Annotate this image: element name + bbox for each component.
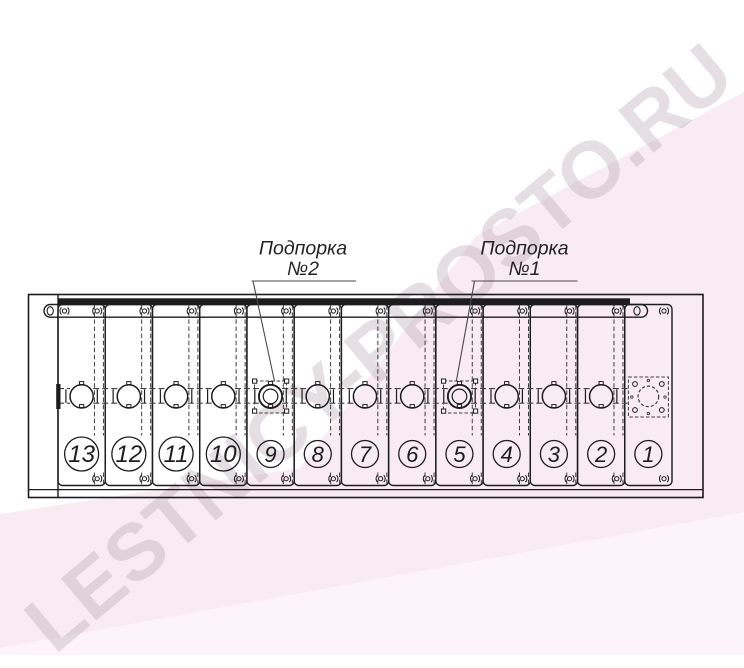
step-number: 2 bbox=[594, 442, 607, 467]
fastener-washer bbox=[237, 309, 241, 313]
step-number: 1 bbox=[642, 442, 654, 467]
fastener-washer bbox=[662, 477, 666, 481]
fastener-washer bbox=[379, 477, 383, 481]
plate-bolt-hole bbox=[633, 408, 638, 413]
fastener-washer bbox=[615, 309, 619, 313]
plate-edge-mark bbox=[647, 412, 649, 414]
fastener-washer bbox=[95, 477, 99, 481]
diagram-stage: LESTNICY-PROSTO.RU 13121110987654321 Под… bbox=[0, 0, 744, 655]
fastener-washer bbox=[473, 309, 477, 313]
fastener-washer bbox=[379, 309, 383, 313]
fastener-icon bbox=[60, 308, 69, 315]
fastener-washer bbox=[615, 477, 619, 481]
fastener-washer bbox=[62, 309, 66, 313]
fastener-washer bbox=[426, 309, 430, 313]
support-corner-mark bbox=[473, 379, 477, 383]
fastener-washer bbox=[142, 477, 146, 481]
support-mount-inner bbox=[452, 389, 467, 404]
fastener-washer bbox=[95, 309, 99, 313]
fastener-washer bbox=[520, 309, 524, 313]
fastener-icon bbox=[659, 308, 668, 315]
step-number: 5 bbox=[453, 442, 466, 467]
bolt-end-icon bbox=[634, 307, 640, 315]
support-corner-mark bbox=[441, 409, 445, 413]
step-number: 7 bbox=[359, 442, 372, 467]
callout-label-line2: №2 bbox=[287, 258, 319, 280]
step-number: 11 bbox=[164, 441, 189, 468]
fastener-washer bbox=[473, 477, 477, 481]
fastener-washer bbox=[567, 477, 571, 481]
plate-edge-mark bbox=[664, 396, 666, 398]
plate-edge-mark bbox=[647, 379, 649, 381]
fastener-washer bbox=[662, 309, 666, 313]
step-number: 4 bbox=[501, 442, 513, 467]
support-corner-mark bbox=[253, 409, 257, 413]
step-number: 3 bbox=[548, 442, 561, 467]
step-number: 8 bbox=[312, 442, 325, 467]
support-mount-inner bbox=[263, 389, 278, 404]
support-corner-mark bbox=[253, 379, 257, 383]
step-number: 6 bbox=[406, 442, 419, 467]
support-corner-mark bbox=[285, 409, 289, 413]
bolt-end-icon bbox=[47, 307, 53, 315]
step-number: 10 bbox=[210, 441, 237, 468]
top-plate-frame bbox=[628, 377, 668, 417]
fastener-washer bbox=[520, 477, 524, 481]
plate-bolt-hole bbox=[659, 382, 664, 387]
callout-label-line2: №1 bbox=[509, 258, 541, 280]
support-corner-mark bbox=[473, 409, 477, 413]
fastener-icon bbox=[659, 475, 668, 482]
callout-support-2: Подпорка №2 bbox=[259, 238, 347, 281]
plate-edge-mark bbox=[631, 396, 633, 398]
fastener-washer bbox=[190, 477, 194, 481]
callout-label-line1: Подпорка bbox=[259, 238, 347, 260]
callout-leader bbox=[253, 281, 275, 382]
fastener-washer bbox=[426, 477, 430, 481]
support-corner-mark bbox=[441, 379, 445, 383]
fastener-washer bbox=[331, 477, 335, 481]
step-number: 9 bbox=[264, 442, 276, 467]
fastener-washer bbox=[190, 309, 194, 313]
callout-label-line1: Подпорка bbox=[480, 238, 568, 260]
fastener-washer bbox=[284, 477, 288, 481]
fastener-washer bbox=[142, 309, 146, 313]
fastener-washer bbox=[237, 477, 241, 481]
fastener-washer bbox=[284, 309, 288, 313]
wall-edge-bar bbox=[58, 298, 630, 304]
plate-bolt-hole bbox=[659, 408, 664, 413]
support-corner-mark bbox=[285, 379, 289, 383]
handrail-bar bbox=[44, 305, 648, 318]
fastener-washer bbox=[567, 309, 571, 313]
callout-support-1: Подпорка №1 bbox=[480, 238, 568, 281]
step-number: 12 bbox=[115, 441, 142, 468]
baluster-hole-hidden bbox=[638, 386, 659, 407]
stair-plan-drawing: 13121110987654321 Подпорка №2 Подпорка №… bbox=[0, 0, 744, 655]
step-number: 13 bbox=[68, 441, 95, 468]
fastener-washer bbox=[331, 309, 335, 313]
plate-bolt-hole bbox=[633, 382, 638, 387]
